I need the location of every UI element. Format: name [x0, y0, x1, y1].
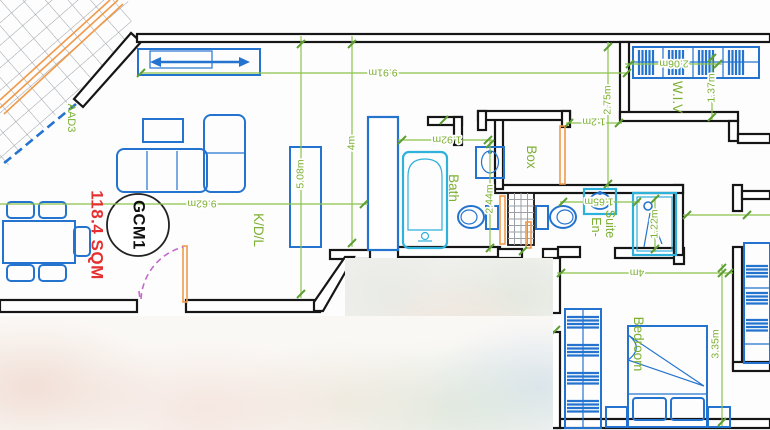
dim-box-door: 1.2m	[582, 116, 606, 128]
duct-column	[368, 117, 398, 250]
dim-bedroom-depth: 3.35m	[710, 329, 722, 358]
dim-living-width: 9.62m	[187, 198, 216, 210]
wardrobe-bedroom-left	[565, 309, 601, 428]
bathtub	[403, 152, 447, 248]
area-label: 118.4 SQM	[88, 190, 107, 280]
entrance-door-leaf	[183, 246, 187, 302]
box-door-leaf	[560, 126, 565, 184]
service-shaft	[508, 193, 534, 245]
door-swing-tick	[139, 291, 140, 300]
ensuite-toilet	[536, 206, 576, 229]
dim-top-overall: 9.91m	[368, 67, 397, 79]
blurred-region-bottom-left	[0, 316, 553, 430]
wardrobe-bedroom-right	[744, 243, 770, 363]
room-label-bedroom: Bedroom	[631, 317, 646, 372]
sofa	[117, 115, 245, 192]
dining-set	[3, 202, 90, 281]
unit-circle-label: GCM1	[130, 200, 148, 250]
dim-wiv-width: 2.06m	[659, 58, 688, 70]
room-label-bath: Bath	[446, 174, 461, 202]
room-label-wiv: W.I.V	[670, 81, 685, 113]
hall-door-leaf	[500, 196, 505, 244]
coffee-table	[143, 119, 183, 142]
dim-wiv-clear: 1.37m	[706, 73, 718, 102]
terrace-hatch	[0, 0, 141, 172]
dim-kitchen-span: 4m	[346, 135, 358, 150]
dim-ensuite-width: 1.65m	[584, 196, 613, 208]
dim-bedroom-width: 4m	[629, 267, 644, 279]
floor-plan-canvas: 9.91m 9.62m 5.08m 4m 1.92m 2.44m 1.2m 2.…	[0, 0, 770, 430]
dim-living-depth: 5.08m	[295, 159, 307, 188]
dim-shower-width: 1.22m	[649, 209, 661, 238]
dim-bath-depth: 2.44m	[484, 184, 496, 213]
dim-wiv-depth: 2.75m	[602, 85, 614, 114]
room-label-ensuite-1: En-	[589, 217, 603, 236]
dim-bath-width: 1.92m	[432, 134, 461, 146]
wardrobe-wiv	[633, 47, 759, 78]
tv-cabinet	[138, 49, 260, 75]
terrace-code-label: AAD3	[65, 104, 77, 133]
room-label-ensuite-2: Suite	[603, 210, 617, 239]
room-label-box: Box	[524, 145, 539, 169]
room-label-kdl: K/D/L	[251, 213, 266, 247]
